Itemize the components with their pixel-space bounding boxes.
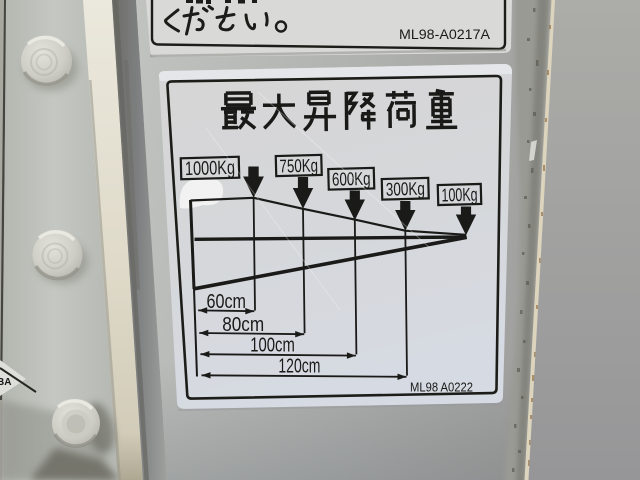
svg-text:100cm: 100cm [250, 334, 294, 357]
svg-text:1000Kg: 1000Kg [185, 157, 236, 180]
svg-text:ML98-A0217A: ML98-A0217A [399, 26, 491, 42]
svg-text:ML98 A0222: ML98 A0222 [410, 380, 473, 395]
svg-text:60cm: 60cm [207, 290, 247, 313]
svg-text:300Kg: 300Kg [386, 178, 426, 200]
svg-text:80cm: 80cm [222, 313, 264, 336]
svg-text:750Kg: 750Kg [279, 155, 318, 177]
svg-text:600Kg: 600Kg [332, 168, 371, 190]
svg-text:BA: BA [0, 377, 11, 388]
svg-text:120cm: 120cm [278, 355, 320, 378]
svg-text:100Kg: 100Kg [441, 184, 478, 206]
